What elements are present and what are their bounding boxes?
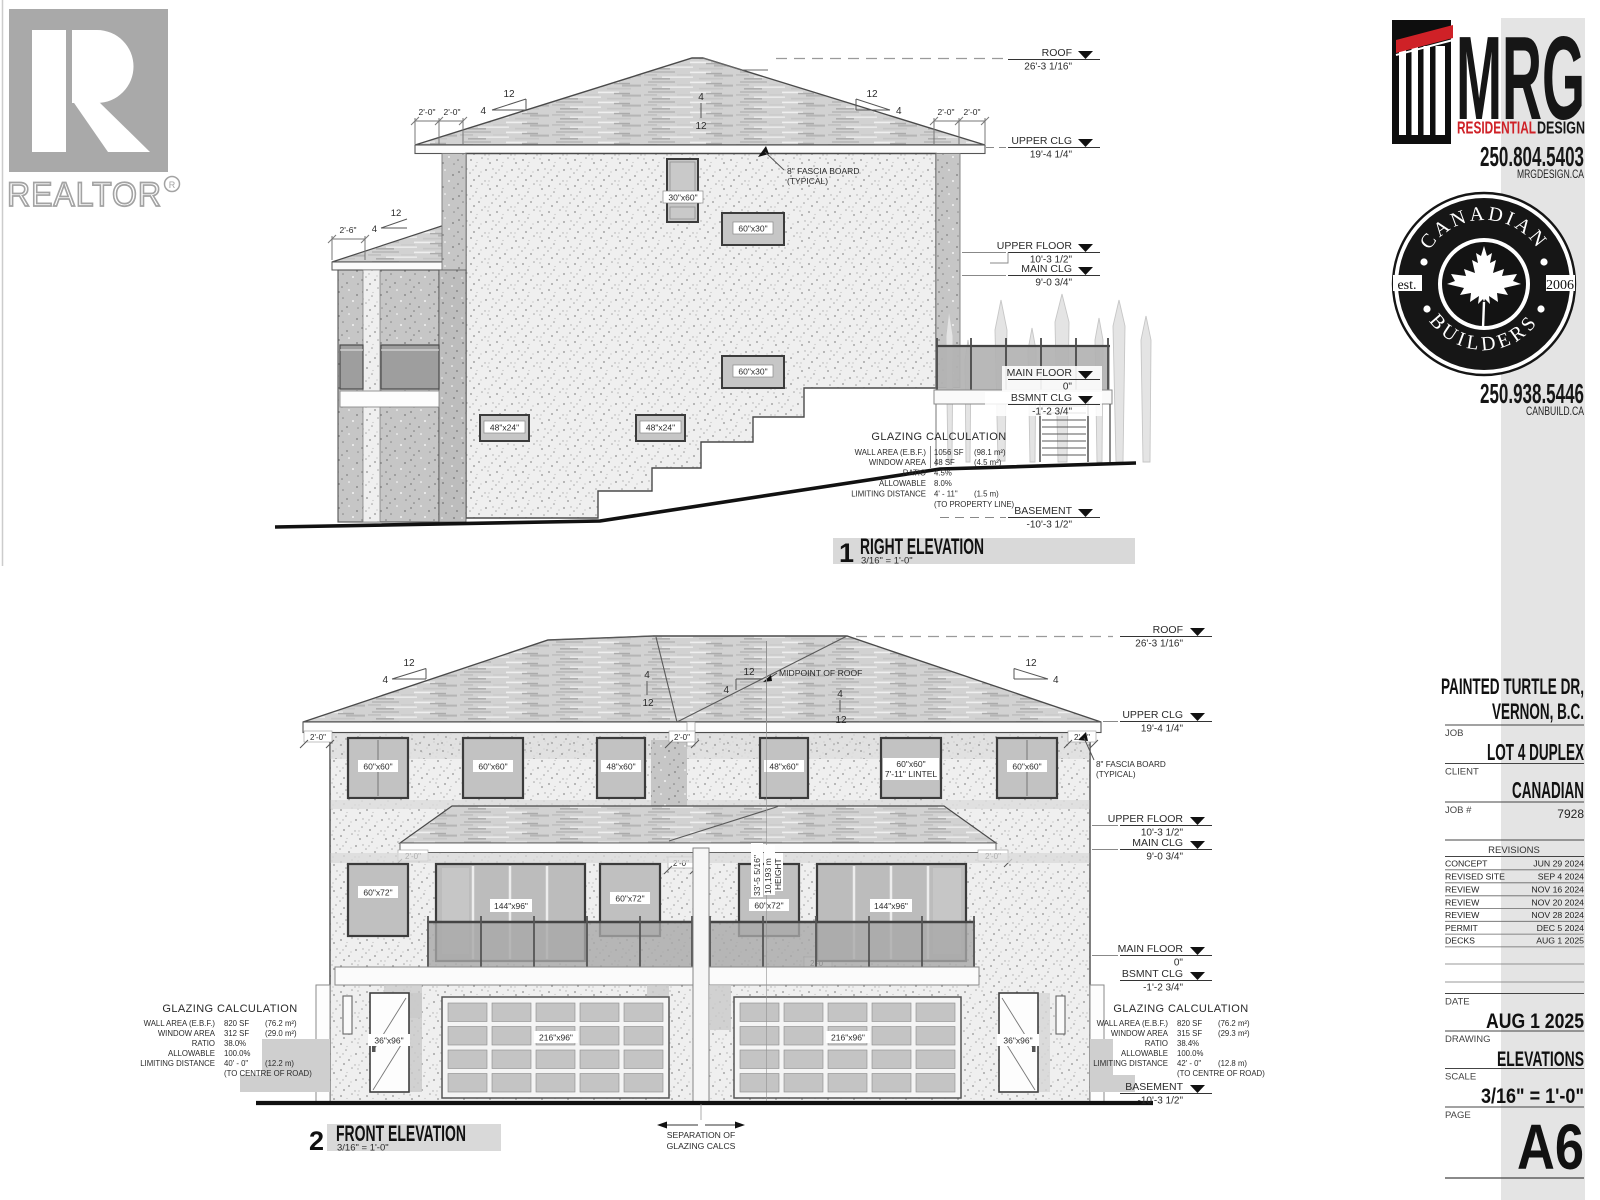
svg-text:MAIN CLG: MAIN CLG — [1021, 263, 1072, 275]
svg-text:60"x30": 60"x30" — [738, 367, 767, 377]
svg-text:(1.5 m): (1.5 m) — [974, 490, 999, 499]
svg-text:UPPER FLOOR: UPPER FLOOR — [997, 240, 1073, 252]
svg-text:10,193 m: 10,193 m — [763, 858, 773, 894]
svg-text:RESIDENTIAL: RESIDENTIAL — [1457, 118, 1536, 138]
svg-text:2'-0": 2'-0" — [444, 107, 461, 117]
svg-text:(98.1 m²): (98.1 m²) — [974, 448, 1006, 457]
svg-text:12: 12 — [403, 658, 415, 669]
svg-text:2: 2 — [309, 1126, 324, 1156]
svg-text:2'-0": 2'-0" — [419, 107, 436, 117]
svg-text:42' - 0": 42' - 0" — [1177, 1059, 1201, 1068]
svg-text:2'-0": 2'-0" — [938, 107, 955, 117]
svg-text:33'-5 5/16": 33'-5 5/16" — [752, 855, 762, 896]
svg-text:60"x72": 60"x72" — [754, 901, 783, 911]
svg-text:4: 4 — [698, 92, 704, 103]
svg-text:26'-3 1/16": 26'-3 1/16" — [1135, 639, 1183, 650]
svg-text:ALLOWABLE: ALLOWABLE — [1121, 1049, 1168, 1058]
svg-text:GLAZING CALCULATION: GLAZING CALCULATION — [1113, 1003, 1248, 1015]
svg-text:8" FASCIA BOARD: 8" FASCIA BOARD — [1096, 760, 1166, 769]
svg-text:GLAZING CALCULATION: GLAZING CALCULATION — [871, 431, 1006, 443]
svg-text:MAIN CLG: MAIN CLG — [1132, 837, 1183, 849]
svg-text:60"x60": 60"x60" — [896, 759, 925, 769]
svg-text:12: 12 — [743, 667, 755, 678]
svg-text:0": 0" — [1063, 382, 1073, 393]
svg-text:(12.2 m): (12.2 m) — [265, 1059, 294, 1068]
svg-text:60"x72": 60"x72" — [615, 894, 644, 904]
svg-text:PAINTED TURTLE DR,: PAINTED TURTLE DR, — [1441, 674, 1584, 699]
svg-text:4' - 11": 4' - 11" — [934, 490, 958, 499]
svg-text:MRGDESIGN.CA: MRGDESIGN.CA — [1517, 169, 1584, 181]
svg-text:WALL AREA (E.B.F.): WALL AREA (E.B.F.) — [855, 448, 927, 457]
svg-text:GLAZING CALCULATION: GLAZING CALCULATION — [162, 1003, 297, 1015]
svg-text:MIDPOINT OF ROOF: MIDPOINT OF ROOF — [779, 668, 862, 678]
svg-text:36"x96": 36"x96" — [374, 1036, 403, 1046]
svg-text:(29.3 m²): (29.3 m²) — [1218, 1029, 1250, 1038]
svg-text:PAGE: PAGE — [1445, 1110, 1471, 1121]
svg-text:(TYPICAL): (TYPICAL) — [787, 176, 828, 186]
svg-text:ROOF: ROOF — [1042, 47, 1072, 59]
svg-text:CANADIAN: CANADIAN — [1512, 777, 1584, 803]
svg-text:(TO CENTRE OF ROAD): (TO CENTRE OF ROAD) — [224, 1069, 312, 1078]
svg-text:12: 12 — [835, 715, 847, 726]
svg-text:-1'-2 3/4": -1'-2 3/4" — [1032, 407, 1072, 418]
svg-text:250.938.5446: 250.938.5446 — [1480, 378, 1584, 409]
svg-text:VERNON, B.C.: VERNON, B.C. — [1492, 699, 1584, 724]
svg-text:2'-6": 2'-6" — [340, 225, 357, 235]
svg-text:CLIENT: CLIENT — [1445, 767, 1479, 778]
svg-text:100.0%: 100.0% — [1177, 1049, 1204, 1058]
svg-text:4: 4 — [837, 689, 843, 700]
svg-text:(TO PROPERTY LINE): (TO PROPERTY LINE) — [934, 500, 1015, 509]
svg-text:UPPER FLOOR: UPPER FLOOR — [1108, 813, 1184, 825]
svg-text:JUN 29 2024: JUN 29 2024 — [1533, 859, 1584, 869]
svg-text:0": 0" — [1174, 958, 1184, 969]
svg-text:2006: 2006 — [1546, 278, 1574, 293]
svg-text:2'-0": 2'-0" — [964, 107, 981, 117]
svg-text:MAIN FLOOR: MAIN FLOOR — [1118, 943, 1184, 955]
svg-text:WALL AREA (E.B.F.): WALL AREA (E.B.F.) — [144, 1019, 216, 1028]
svg-text:9'-0 3/4": 9'-0 3/4" — [1035, 278, 1072, 289]
svg-text:SEPARATION OF: SEPARATION OF — [667, 1130, 735, 1140]
svg-text:12: 12 — [866, 89, 878, 100]
svg-text:ALLOWABLE: ALLOWABLE — [168, 1049, 215, 1058]
svg-text:40' - 0": 40' - 0" — [224, 1059, 248, 1068]
svg-text:7'-11" LINTEL: 7'-11" LINTEL — [885, 769, 937, 779]
svg-text:ELEVATIONS: ELEVATIONS — [1497, 1048, 1584, 1071]
svg-text:312 SF: 312 SF — [224, 1029, 249, 1038]
svg-text:REVIEW: REVIEW — [1445, 897, 1480, 907]
svg-text:R: R — [169, 180, 176, 190]
svg-text:DATE: DATE — [1445, 997, 1470, 1008]
svg-text:4: 4 — [723, 685, 729, 696]
svg-text:-1'-2 3/4": -1'-2 3/4" — [1143, 983, 1183, 994]
svg-text:-10'-3 1/2": -10'-3 1/2" — [1027, 520, 1073, 531]
svg-text:250.804.5403: 250.804.5403 — [1480, 141, 1584, 172]
svg-text:(TO CENTRE OF ROAD): (TO CENTRE OF ROAD) — [1177, 1069, 1265, 1078]
svg-text:216"x96": 216"x96" — [831, 1033, 865, 1043]
svg-text:REALTOR: REALTOR — [7, 176, 162, 214]
svg-text:GLAZING CALCS: GLAZING CALCS — [667, 1141, 736, 1151]
svg-text:(4.5 m²): (4.5 m²) — [974, 458, 1002, 467]
svg-text:UPPER CLG: UPPER CLG — [1011, 135, 1072, 147]
svg-text:4: 4 — [382, 675, 388, 686]
svg-text:38.4%: 38.4% — [1177, 1039, 1199, 1048]
svg-text:REVISED SITE: REVISED SITE — [1445, 872, 1505, 882]
svg-text:LIMITING DISTANCE: LIMITING DISTANCE — [140, 1059, 215, 1068]
svg-text:LIMITING DISTANCE: LIMITING DISTANCE — [851, 490, 926, 499]
svg-text:12: 12 — [503, 89, 515, 100]
svg-text:WALL AREA (E.B.F.): WALL AREA (E.B.F.) — [1097, 1019, 1169, 1028]
svg-text:WINDOW AREA: WINDOW AREA — [869, 458, 927, 467]
svg-text:BASEMENT: BASEMENT — [1125, 1081, 1183, 1093]
svg-text:DRAWING: DRAWING — [1445, 1034, 1491, 1045]
svg-text:26'-3 1/16": 26'-3 1/16" — [1024, 62, 1072, 73]
svg-text:REVIEW: REVIEW — [1445, 910, 1480, 920]
svg-text:JOB: JOB — [1445, 728, 1463, 739]
svg-text:48"x60": 48"x60" — [769, 762, 798, 772]
svg-text:A6: A6 — [1517, 1111, 1584, 1183]
svg-text:3/16" = 1'-0": 3/16" = 1'-0" — [337, 1143, 389, 1154]
svg-text:30"x60": 30"x60" — [668, 193, 697, 203]
svg-text:DESIGN: DESIGN — [1537, 118, 1585, 138]
svg-text:4: 4 — [480, 106, 486, 117]
svg-text:19'-4 1/4": 19'-4 1/4" — [1141, 724, 1184, 735]
svg-text:48"x60": 48"x60" — [606, 762, 635, 772]
svg-text:19'-4 1/4": 19'-4 1/4" — [1030, 150, 1073, 161]
svg-text:BASEMENT: BASEMENT — [1014, 505, 1072, 517]
svg-text:8" FASCIA BOARD: 8" FASCIA BOARD — [787, 166, 859, 176]
svg-text:9'-0 3/4": 9'-0 3/4" — [1146, 852, 1183, 863]
svg-text:UPPER CLG: UPPER CLG — [1122, 709, 1183, 721]
svg-text:RATIO: RATIO — [903, 469, 926, 478]
svg-text:SEP 4 2024: SEP 4 2024 — [1538, 872, 1584, 882]
svg-text:PERMIT: PERMIT — [1445, 923, 1479, 933]
svg-text:4: 4 — [896, 106, 902, 117]
svg-text:100.0%: 100.0% — [224, 1049, 251, 1058]
svg-text:CONCEPT: CONCEPT — [1445, 859, 1488, 869]
svg-text:48"x24": 48"x24" — [646, 423, 675, 433]
svg-text:315 SF: 315 SF — [1177, 1029, 1202, 1038]
svg-text:CANBUILD.CA: CANBUILD.CA — [1526, 406, 1584, 418]
svg-text:820 SF: 820 SF — [224, 1019, 249, 1028]
svg-text:-10'-3 1/2": -10'-3 1/2" — [1138, 1096, 1184, 1107]
svg-text:SCALE: SCALE — [1445, 1072, 1476, 1083]
svg-text:LIMITING DISTANCE: LIMITING DISTANCE — [1093, 1059, 1168, 1068]
svg-text:AUG 1 2025: AUG 1 2025 — [1536, 936, 1584, 946]
svg-text:RATIO: RATIO — [192, 1039, 215, 1048]
svg-text:NOV 28 2024: NOV 28 2024 — [1531, 910, 1584, 920]
svg-text:2'-0": 2'-0" — [674, 733, 690, 742]
svg-text:60"x60": 60"x60" — [1012, 762, 1041, 772]
svg-text:REVIEW: REVIEW — [1445, 885, 1480, 895]
svg-text:12: 12 — [695, 121, 707, 132]
svg-text:AUG 1 2025: AUG 1 2025 — [1486, 1010, 1584, 1033]
svg-text:BSMNT CLG: BSMNT CLG — [1011, 392, 1072, 404]
svg-text:WINDOW AREA: WINDOW AREA — [158, 1029, 216, 1038]
svg-text:NOV 16 2024: NOV 16 2024 — [1531, 885, 1584, 895]
svg-text:LOT 4 DUPLEX: LOT 4 DUPLEX — [1487, 739, 1584, 765]
svg-text:7928: 7928 — [1557, 807, 1584, 821]
svg-text:4.5%: 4.5% — [934, 469, 952, 478]
svg-text:48"x24": 48"x24" — [490, 423, 519, 433]
svg-text:12: 12 — [1025, 658, 1037, 669]
svg-text:BSMNT CLG: BSMNT CLG — [1122, 968, 1183, 980]
svg-text:MAIN FLOOR: MAIN FLOOR — [1007, 367, 1073, 379]
svg-text:4: 4 — [644, 670, 650, 681]
svg-text:(TYPICAL): (TYPICAL) — [1096, 770, 1136, 779]
svg-text:DEC 5 2024: DEC 5 2024 — [1537, 923, 1584, 933]
svg-text:144"x96": 144"x96" — [874, 901, 908, 911]
svg-text:4: 4 — [1053, 675, 1059, 686]
svg-text:HEIGHT: HEIGHT — [773, 858, 783, 890]
svg-text:3/16" = 1'-0": 3/16" = 1'-0" — [861, 556, 913, 567]
svg-text:4: 4 — [372, 224, 377, 235]
svg-text:DECKS: DECKS — [1445, 936, 1475, 946]
svg-text:(76.2 m²): (76.2 m²) — [265, 1019, 297, 1028]
svg-text:60"x60": 60"x60" — [363, 762, 392, 772]
svg-text:144"x96": 144"x96" — [494, 901, 528, 911]
svg-text:216"x96": 216"x96" — [539, 1033, 573, 1043]
svg-text:1: 1 — [839, 538, 854, 568]
svg-text:REVISIONS: REVISIONS — [1488, 845, 1540, 856]
svg-text:NOV 20 2024: NOV 20 2024 — [1531, 897, 1584, 907]
svg-text:60"x72": 60"x72" — [363, 888, 392, 898]
svg-text:8.0%: 8.0% — [934, 479, 952, 488]
svg-text:2'-0": 2'-0" — [310, 733, 326, 742]
svg-text:48 SF: 48 SF — [934, 458, 955, 467]
svg-text:WINDOW AREA: WINDOW AREA — [1111, 1029, 1169, 1038]
svg-text:12: 12 — [391, 208, 402, 219]
svg-text:36"x96": 36"x96" — [1003, 1036, 1032, 1046]
svg-text:60"x60": 60"x60" — [478, 762, 507, 772]
svg-text:est.: est. — [1397, 278, 1416, 293]
svg-text:60"x30": 60"x30" — [738, 224, 767, 234]
svg-text:12: 12 — [642, 698, 654, 709]
svg-text:RATIO: RATIO — [1145, 1039, 1168, 1048]
svg-text:JOB #: JOB # — [1445, 805, 1472, 816]
svg-text:ALLOWABLE: ALLOWABLE — [879, 479, 926, 488]
svg-text:(12.8 m): (12.8 m) — [1218, 1059, 1247, 1068]
svg-text:(29.0 m²): (29.0 m²) — [265, 1029, 297, 1038]
svg-text:1056 SF: 1056 SF — [934, 448, 964, 457]
svg-text:3/16" = 1'-0": 3/16" = 1'-0" — [1481, 1085, 1584, 1108]
svg-text:820 SF: 820 SF — [1177, 1019, 1202, 1028]
svg-text:38.0%: 38.0% — [224, 1039, 246, 1048]
svg-text:ROOF: ROOF — [1153, 624, 1183, 636]
svg-text:(76.2 m²): (76.2 m²) — [1218, 1019, 1250, 1028]
